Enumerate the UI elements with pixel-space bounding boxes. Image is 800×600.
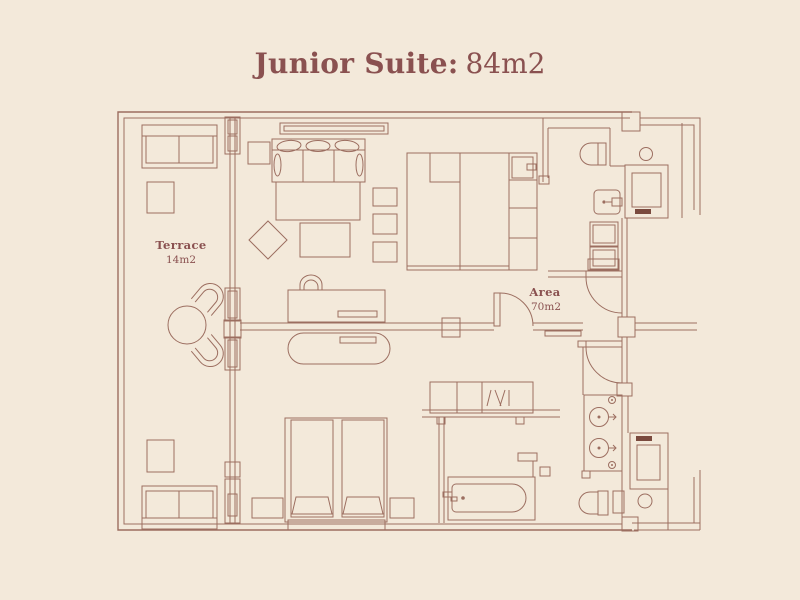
stadium-bench <box>288 333 390 364</box>
curtain-box <box>280 123 388 134</box>
rug <box>276 182 360 220</box>
washbasin-top <box>594 190 622 214</box>
living-sofa <box>272 139 365 182</box>
shower-bottom <box>630 433 668 508</box>
terrace-chair-upper <box>191 278 228 315</box>
nightstand-right <box>390 498 414 518</box>
side-square-table <box>248 142 270 164</box>
terrace-name: Terrace <box>155 238 206 252</box>
toilet-bottom <box>579 491 624 515</box>
coffee-table <box>300 223 350 257</box>
king-bed <box>407 153 509 270</box>
square-table-bottom <box>147 440 174 472</box>
floor-plan-page: Junior Suite:84m2 <box>0 0 800 600</box>
round-dining-table <box>168 306 206 344</box>
terrace-area: 14m2 <box>166 254 196 266</box>
terrace-label: Terrace 14m2 <box>155 238 206 266</box>
title-suite: Junior Suite: <box>252 47 459 80</box>
glass-partition <box>224 117 241 523</box>
bathroom-door <box>586 341 622 383</box>
shower-top <box>625 165 668 218</box>
interior-area-label: Area 70m2 <box>528 285 561 313</box>
double-bed <box>285 418 387 530</box>
desk <box>288 290 385 322</box>
wall-light <box>640 148 653 161</box>
diamond-side-table <box>249 221 287 259</box>
outdoor-sofa-top <box>142 125 217 168</box>
terrace-chair-lower <box>191 334 228 371</box>
towel-shelves <box>588 222 619 270</box>
outdoor-sofa-bottom <box>142 486 217 529</box>
page-title: Junior Suite:84m2 <box>252 47 546 80</box>
toilet-top <box>580 143 606 165</box>
stool-column <box>373 188 397 262</box>
nightstand-left <box>252 498 283 518</box>
interior-name: Area <box>528 285 560 299</box>
safe <box>512 157 536 178</box>
bathtub <box>443 477 535 520</box>
floor-plan-drawing: Junior Suite:84m2 <box>0 0 800 600</box>
wc-door <box>586 271 622 313</box>
wardrobe <box>430 382 533 413</box>
double-vanity <box>584 395 622 471</box>
title-area-value: 84m2 <box>465 47 545 80</box>
entry-door <box>494 293 533 326</box>
desk-chair <box>300 275 322 290</box>
square-table-top <box>147 182 174 213</box>
interior-area: 70m2 <box>531 301 561 313</box>
sliding-door <box>545 331 581 336</box>
